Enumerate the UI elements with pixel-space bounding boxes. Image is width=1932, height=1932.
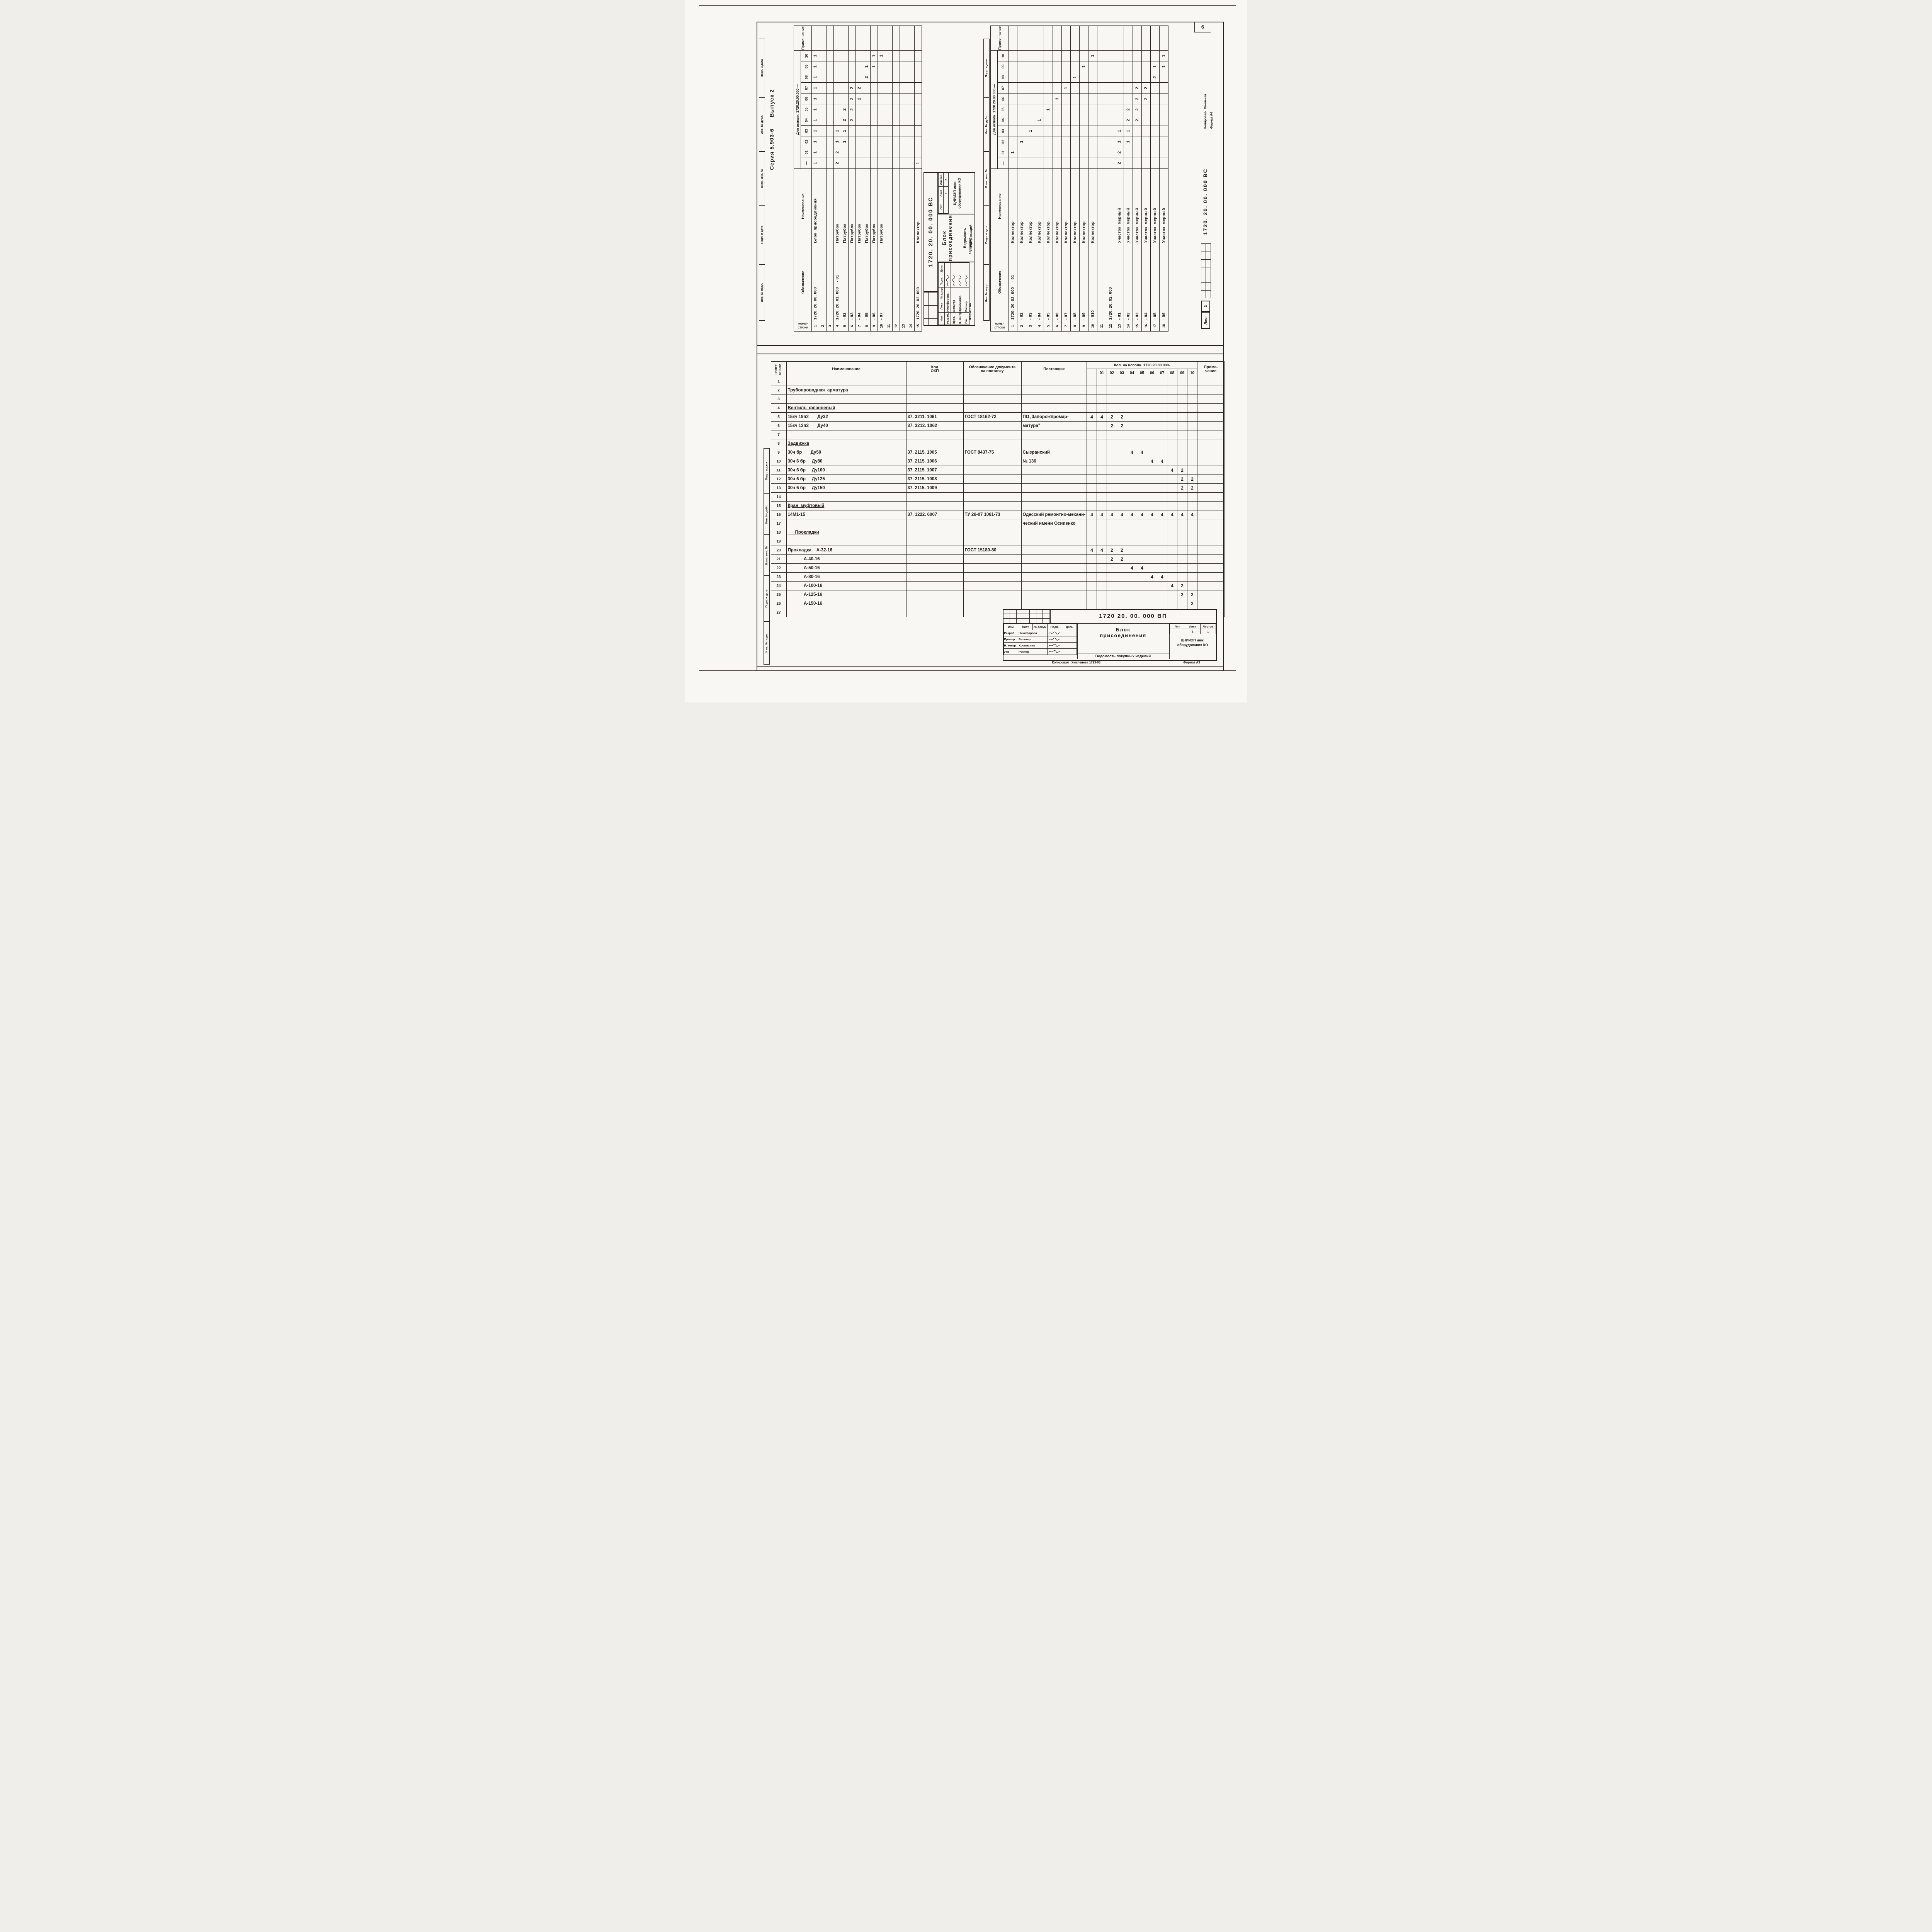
cell-qty: 2: [1177, 466, 1187, 475]
cell-qty: [1147, 599, 1157, 608]
cell-qty: [1088, 158, 1097, 169]
sheet-label: Лист: [1201, 312, 1210, 329]
col-header-exec: 03: [801, 126, 811, 136]
cell-line-number: 7: [1061, 321, 1070, 331]
cell-qty: [1137, 422, 1147, 430]
cell-line-number: 2: [771, 386, 786, 395]
cell-qty: [1026, 51, 1035, 61]
cell-qty: [1026, 94, 1035, 104]
document-number-margin: 1720. 20. 00. 000 ВС: [1202, 168, 1208, 235]
cell-qty: [1097, 404, 1107, 413]
col-header-exec: 03: [997, 126, 1008, 136]
cell-qty: [1079, 94, 1088, 104]
cell-line-number: 10: [771, 457, 786, 466]
margin-label: Инв. № дубл.: [759, 98, 765, 151]
cell-qty: [1087, 502, 1097, 510]
cell-qty: [1127, 484, 1137, 493]
cell-qty: 4: [1157, 510, 1167, 519]
cell-qty: [1147, 546, 1157, 555]
cell-qty: 1: [833, 126, 841, 136]
cell-qty: 4: [1087, 546, 1097, 555]
cell-qty: [900, 83, 907, 94]
cell-qty: [1147, 475, 1157, 484]
page-bottom-line: [699, 670, 1236, 671]
cell-qty: [819, 51, 826, 61]
cell-qty: [1150, 51, 1159, 61]
cell-okp: 37. 2115. 1009: [906, 484, 963, 493]
spec-table: НОМЕР СТРОКИОбозначениеНаименованиеДля и…: [794, 26, 922, 332]
col-header-exec: 05: [997, 104, 1008, 115]
margin-label: Взам. инв. №: [983, 151, 990, 205]
cell-okp: [906, 386, 963, 395]
cell-qty: [1115, 104, 1124, 115]
cell-name: Коллектор: [914, 168, 922, 244]
cell-document: [963, 537, 1021, 546]
cell-qty: [1026, 158, 1035, 169]
copied-mark: Копировал·: [968, 236, 972, 254]
cell-qty: [907, 104, 914, 115]
cell-qty: [1187, 502, 1197, 510]
cell-document: ГОСТ 8437-75: [963, 448, 1021, 457]
cell-qty: [1053, 126, 1061, 136]
cell-supplier: [1021, 475, 1087, 484]
cell-note: [1197, 555, 1225, 564]
cell-qty: [1097, 386, 1107, 395]
cell-qty: [1159, 136, 1168, 147]
cell-document: [963, 430, 1021, 439]
cell-qty: [1008, 136, 1017, 147]
cell-qty: [914, 126, 922, 136]
cell-note: [1197, 466, 1225, 475]
cell-qty: [1097, 457, 1107, 466]
cell-note: [833, 26, 841, 51]
cell-qty: [1097, 590, 1107, 599]
table-row: 1: [771, 377, 1225, 386]
cell-qty: [1157, 404, 1167, 413]
cell-qty: [841, 147, 848, 158]
table-row: 930ч бр Ду5037. 2115. 1005ГОСТ 8437-75Сы…: [771, 448, 1225, 457]
cell-okp: [906, 377, 963, 386]
cell-supplier: [1021, 502, 1087, 510]
cell-qty: [1097, 573, 1107, 582]
cell-qty: [1187, 448, 1197, 457]
cell-line-number: 18: [771, 528, 786, 537]
cell-qty: [900, 126, 907, 136]
sig-header-cell: Изм: [1003, 624, 1018, 630]
signature-row: Н. контр.Хромихина: [957, 263, 963, 325]
col-header-exec: —: [997, 158, 1008, 169]
col-header-executions: Для исполн. 1720 20.00.000 —: [990, 51, 997, 169]
cell-name: Блок присоединения: [811, 168, 819, 244]
copied-mark: Копировал· Хмеленен: [1204, 94, 1207, 129]
cell-qty: 1: [811, 83, 819, 94]
cell-qty: [1187, 528, 1197, 537]
cell-qty: [1167, 430, 1177, 439]
cell-qty: [855, 104, 863, 115]
sig-date: [1062, 630, 1077, 636]
table-row: 7: [771, 430, 1225, 439]
cell-qty: [1187, 564, 1197, 573]
cell-qty: [1061, 136, 1070, 147]
cell-qty: [1097, 564, 1107, 573]
signature-scribble: [963, 275, 969, 287]
cell-qty: [892, 51, 900, 61]
title-block-purchase: 1720 20. 00. 000 ВП ИзмЛист№ докумПодп.Д…: [1003, 609, 1217, 661]
cell-qty: [1070, 158, 1079, 169]
cell-qty: 2: [841, 104, 848, 115]
cell-name: [826, 168, 833, 244]
cell-okp: 37. 2115. 1008: [906, 475, 963, 484]
cell-qty: 2: [1107, 422, 1117, 430]
cell-qty: 1: [811, 147, 819, 158]
cell-qty: [1087, 484, 1097, 493]
cell-line-number: 23: [771, 573, 786, 582]
cell-name: [786, 395, 906, 404]
cell-qty: [892, 83, 900, 94]
cell-name: Участок мерный: [1133, 168, 1141, 244]
cell-qty: [1127, 395, 1137, 404]
cell-qty: [1044, 115, 1053, 126]
cell-okp: [906, 430, 963, 439]
cell-qty: [1137, 457, 1147, 466]
cell-qty: 2: [1117, 422, 1127, 430]
sig-header-cell: Подп.: [938, 275, 944, 287]
cell-qty: [1117, 537, 1127, 546]
cell-qty: [1079, 72, 1088, 83]
cell-qty: [900, 158, 907, 168]
cell-qty: [1137, 404, 1147, 413]
cell-note: [1088, 26, 1097, 51]
cell-qty: [1008, 72, 1017, 83]
cell-qty: [1087, 395, 1097, 404]
cell-qty: [1087, 457, 1097, 466]
cell-note: [1197, 510, 1225, 519]
cell-line-number: 14: [907, 321, 914, 331]
sig-header-cell: Дата: [1062, 624, 1077, 630]
cell-qty: [1070, 136, 1079, 147]
cell-qty: [1097, 51, 1106, 61]
col-header-exec: 02: [1107, 369, 1117, 377]
cell-qty: [848, 61, 855, 72]
cell-qty: [1087, 582, 1097, 590]
cell-qty: [1070, 104, 1079, 115]
sig-date: [957, 263, 963, 275]
cell-qty: [1124, 147, 1133, 158]
cell-qty: [819, 126, 826, 136]
cell-qty: [1088, 61, 1097, 72]
cell-qty: [819, 147, 826, 158]
cell-qty: [1177, 493, 1187, 502]
cell-qty: [1117, 448, 1127, 457]
cell-qty: [1035, 94, 1044, 104]
cell-qty: [1008, 61, 1017, 72]
col-header-exec: 05: [801, 104, 811, 115]
table-row: 1614М1-1537. 1222. 6007ТУ 26-07 1061-73О…: [771, 510, 1225, 519]
cell-qty: [914, 136, 922, 147]
cell-line-number: 5: [771, 413, 786, 422]
table-row: 1230ч 6 бр Ду12537. 2115. 100822: [771, 475, 1225, 484]
cell-name: [892, 168, 900, 244]
cell-qty: [914, 115, 922, 126]
cell-qty: [1079, 147, 1088, 158]
signature-row: Н. контрХромихина: [1003, 643, 1077, 649]
cell-note: [1150, 26, 1159, 51]
col-header-exec: 08: [1167, 369, 1177, 377]
cell-qty: [1061, 61, 1070, 72]
cell-qty: [1107, 502, 1117, 510]
cell-document: ТУ 26-07 1061-73: [963, 510, 1021, 519]
table-row: 151720. 20. 02. 000Коллектор1: [914, 26, 922, 332]
sig-header-cell: Подп.: [1047, 624, 1062, 630]
cell-qty: [1137, 528, 1147, 537]
cell-qty: [1127, 430, 1137, 439]
cell-qty: [1106, 147, 1115, 158]
cell-qty: [1079, 51, 1088, 61]
cell-qty: [1026, 61, 1035, 72]
cell-qty: 1: [833, 136, 841, 147]
cell-designation: 1720. 20. 00. 000: [811, 244, 819, 321]
cell-qty: 2: [855, 83, 863, 94]
cell-qty: [1167, 590, 1177, 599]
cell-supplier: [1021, 599, 1087, 608]
cell-qty: [1187, 422, 1197, 430]
cell-qty: [1044, 158, 1053, 169]
cell-line-number: 13: [900, 321, 907, 331]
cell-qty: [900, 115, 907, 126]
cell-name: Коллектор: [1088, 168, 1097, 244]
cell-qty: [855, 136, 863, 147]
sig-date: [1062, 649, 1077, 655]
cell-qty: [833, 104, 841, 115]
cell-qty: [885, 115, 892, 126]
cell-qty: [1150, 83, 1159, 94]
cell-qty: 2: [1133, 94, 1141, 104]
cell-qty: 1: [1070, 72, 1079, 83]
cell-qty: [1137, 439, 1147, 448]
col-header-exec: 10: [997, 51, 1008, 61]
cell-qty: [1008, 115, 1017, 126]
cell-qty: 2: [833, 158, 841, 168]
cell-qty: [1087, 590, 1097, 599]
cell-name: 15кч 19п2 Ду32: [786, 413, 906, 422]
cell-line-number: 7: [771, 430, 786, 439]
cell-qty: [1044, 147, 1053, 158]
cell-qty: [1115, 94, 1124, 104]
cell-qty: [1187, 546, 1197, 555]
cell-qty: 2: [848, 104, 855, 115]
cell-line-number: 27: [771, 608, 786, 617]
cell-note: [1070, 26, 1079, 51]
cell-qty: [907, 158, 914, 168]
table-row: 41720. 20. 01. 000 - 01Патрубок2211: [833, 26, 841, 332]
cell-qty: [1167, 573, 1177, 582]
cell-designation: - 04: [855, 244, 863, 321]
revision-grid: [1003, 610, 1051, 623]
cell-qty: 1: [1035, 115, 1044, 126]
cell-qty: 2: [1133, 115, 1141, 126]
cell-qty: 4: [1167, 582, 1177, 590]
cell-qty: [1117, 582, 1127, 590]
cell-qty: [1117, 395, 1127, 404]
cell-designation: [900, 244, 907, 321]
margin-label: Взам. инв. №: [759, 151, 765, 205]
cell-designation: - 06: [1159, 244, 1168, 321]
cell-qty: [870, 147, 878, 158]
cell-supplier: [1021, 582, 1087, 590]
cell-qty: [826, 158, 833, 168]
margin-label: Инв. № подл.: [759, 264, 765, 321]
cell-line-number: 4: [833, 321, 841, 331]
cell-qty: [1157, 599, 1167, 608]
cell-designation: [907, 244, 914, 321]
sheet-number: 2: [1201, 301, 1210, 312]
cell-qty: [1035, 72, 1044, 83]
cell-qty: [1107, 457, 1117, 466]
cell-qty: [1147, 564, 1157, 573]
spec-table: НОМЕР СТРОКИОбозначениеНаименованиеДля и…: [990, 26, 1168, 332]
cell-qty: [1177, 537, 1187, 546]
margin-strip-purchase: Инв. № подл.Подп. и датаВзам. инв. №Инв.…: [764, 448, 770, 665]
cell-qty: [885, 158, 892, 168]
cell-qty: [1087, 519, 1097, 528]
cell-name: 30ч 6 бр Ду80: [786, 457, 906, 466]
cell-qty: [1079, 158, 1088, 169]
cell-line-number: 15: [914, 321, 922, 331]
cell-qty: [1017, 147, 1026, 158]
cell-qty: 1: [811, 104, 819, 115]
cell-qty: [1159, 147, 1168, 158]
cell-qty: [826, 51, 833, 61]
cell-qty: [1008, 104, 1017, 115]
table-row: 17ческий имени Осипенко: [771, 519, 1225, 528]
cell-qty: [1106, 72, 1115, 83]
cell-qty: 1: [1017, 136, 1026, 147]
sig-header-cell: Лист: [938, 300, 944, 312]
sig-surname: Хромихина: [1018, 643, 1048, 649]
cell-qty: 1: [841, 126, 848, 136]
cell-qty: [1107, 528, 1117, 537]
cell-qty: 2: [1117, 555, 1127, 564]
cell-qty: [1157, 564, 1167, 573]
signature-scribble: [1047, 649, 1062, 655]
format-mark: Формат А3: [1184, 661, 1200, 664]
cell-qty: [1167, 404, 1177, 413]
sig-header-cell: № докум: [1033, 624, 1048, 630]
cell-document: [963, 502, 1021, 510]
cell-note: [1197, 582, 1225, 590]
cell-qty: [826, 136, 833, 147]
cell-supplier: матура": [1021, 422, 1087, 430]
signature-row: Разраб.Никифорова: [944, 263, 951, 325]
cell-qty: [819, 72, 826, 83]
cell-qty: [833, 61, 841, 72]
cell-designation: - 010: [1088, 244, 1097, 321]
cell-okp: [906, 395, 963, 404]
cell-qty: [1044, 136, 1053, 147]
cell-qty: [1087, 528, 1097, 537]
cell-qty: 4: [1127, 448, 1137, 457]
cell-qty: [841, 158, 848, 168]
cell-qty: 1: [811, 115, 819, 126]
cell-qty: [892, 126, 900, 136]
cell-qty: [907, 72, 914, 83]
cell-line-number: 18: [1159, 321, 1168, 331]
cell-qty: [1137, 413, 1147, 422]
cell-name: Задвижка: [786, 439, 906, 448]
cell-designation: - 06: [1053, 244, 1061, 321]
sig-role: Провер.: [1003, 636, 1018, 643]
cell-name: [907, 168, 914, 244]
cell-note: [1017, 26, 1026, 51]
cell-qty: 4: [1187, 510, 1197, 519]
cell-qty: [1157, 377, 1167, 386]
cell-qty: [819, 61, 826, 72]
cell-qty: [863, 94, 870, 104]
cell-qty: 1: [811, 136, 819, 147]
cell-qty: [1035, 158, 1044, 169]
cell-qty: [1177, 519, 1187, 528]
col-header-exec: 01: [1097, 369, 1107, 377]
purchase-table: НОМЕР СТРОКИНаименованиеКод ОКПОбозначен…: [771, 361, 1225, 617]
cell-line-number: 6: [771, 422, 786, 430]
cell-qty: [1133, 72, 1141, 83]
cell-qty: [863, 158, 870, 168]
lit-cell: Лит.: [938, 200, 943, 214]
organization: ЦНИИЭП инж.оборудования КО: [1170, 634, 1216, 659]
cell-qty: [855, 147, 863, 158]
cell-qty: [1044, 61, 1053, 72]
cell-designation: 1720. 20. 01. 000 - 01: [833, 244, 841, 321]
cell-designation: [819, 244, 826, 321]
cell-qty: [1008, 126, 1017, 136]
cell-qty: 4: [1127, 510, 1137, 519]
cell-qty: [1127, 386, 1137, 395]
sig-header-cell: № докум.: [938, 287, 944, 300]
cell-qty: [1070, 83, 1079, 94]
cell-designation: - 02: [1124, 244, 1133, 321]
cell-qty: [900, 94, 907, 104]
cell-qty: [1124, 51, 1133, 61]
cell-qty: [885, 61, 892, 72]
cell-supplier: [1021, 484, 1087, 493]
cell-qty: [1053, 72, 1061, 83]
cell-qty: [900, 61, 907, 72]
cell-name: А-125-16: [786, 590, 906, 599]
cell-qty: [1117, 519, 1127, 528]
stamp-subtitle: Ведомость покупных изделий: [1078, 653, 1169, 659]
cell-qty: [1017, 94, 1026, 104]
cell-qty: [1097, 72, 1106, 83]
cell-qty: [1107, 386, 1117, 395]
cell-qty: [1177, 457, 1187, 466]
cell-document: [963, 377, 1021, 386]
cell-qty: [1177, 546, 1187, 555]
lit-cell: Лист: [938, 187, 943, 200]
cell-name: [900, 168, 907, 244]
cell-qty: [855, 61, 863, 72]
col-header-exec: 06: [997, 94, 1008, 104]
cell-line-number: 17: [1150, 321, 1159, 331]
cell-qty: 2: [1141, 94, 1150, 104]
cell-qty: [907, 136, 914, 147]
cell-qty: [1187, 430, 1197, 439]
col-header-exec: 02: [801, 136, 811, 147]
table-row: 15Кран муфтовый: [771, 502, 1225, 510]
cell-qty: [1088, 126, 1097, 136]
series-header-block: Серия 5.903-6 Выпуск 2: [766, 31, 777, 170]
cell-designation: - 02: [841, 244, 848, 321]
cell-line-number: 7: [855, 321, 863, 331]
